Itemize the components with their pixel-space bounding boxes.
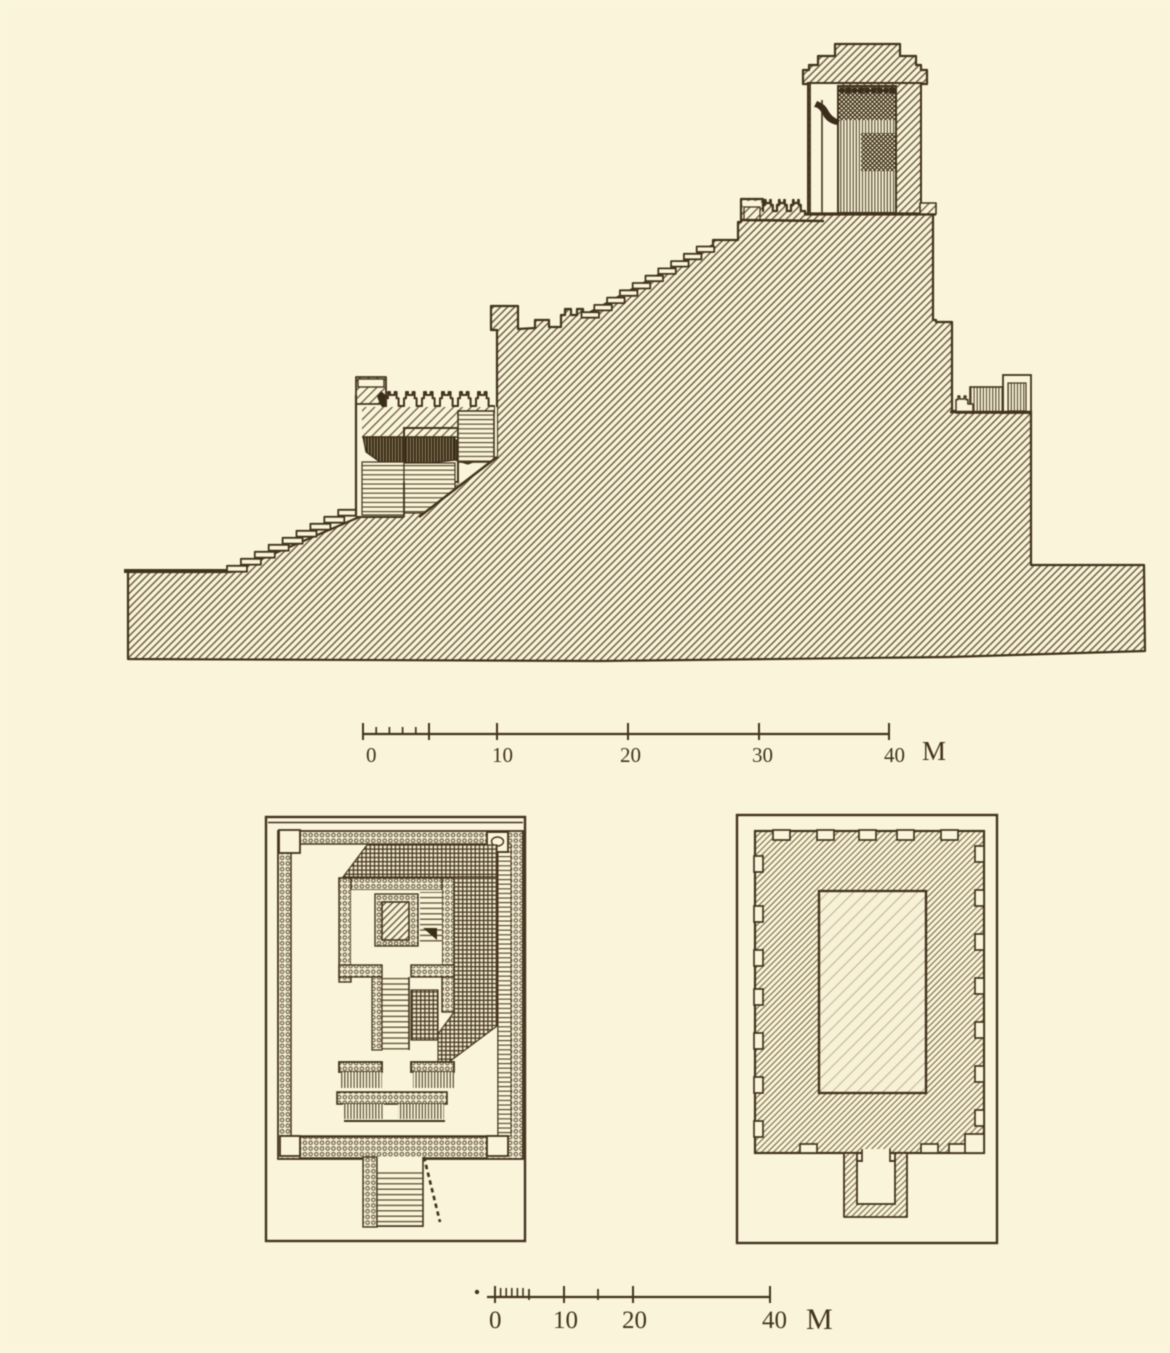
svg-text:M: M	[922, 736, 946, 766]
svg-text:20: 20	[622, 1307, 647, 1334]
svg-text:40: 40	[762, 1307, 787, 1334]
svg-text:0: 0	[489, 1307, 502, 1334]
svg-text:10: 10	[492, 743, 513, 767]
svg-text:0: 0	[366, 743, 377, 767]
svg-text:40: 40	[884, 743, 905, 767]
svg-text:10: 10	[553, 1307, 578, 1334]
svg-text:M: M	[806, 1303, 833, 1336]
svg-text:30: 30	[752, 743, 773, 767]
svg-text:20: 20	[620, 743, 641, 767]
